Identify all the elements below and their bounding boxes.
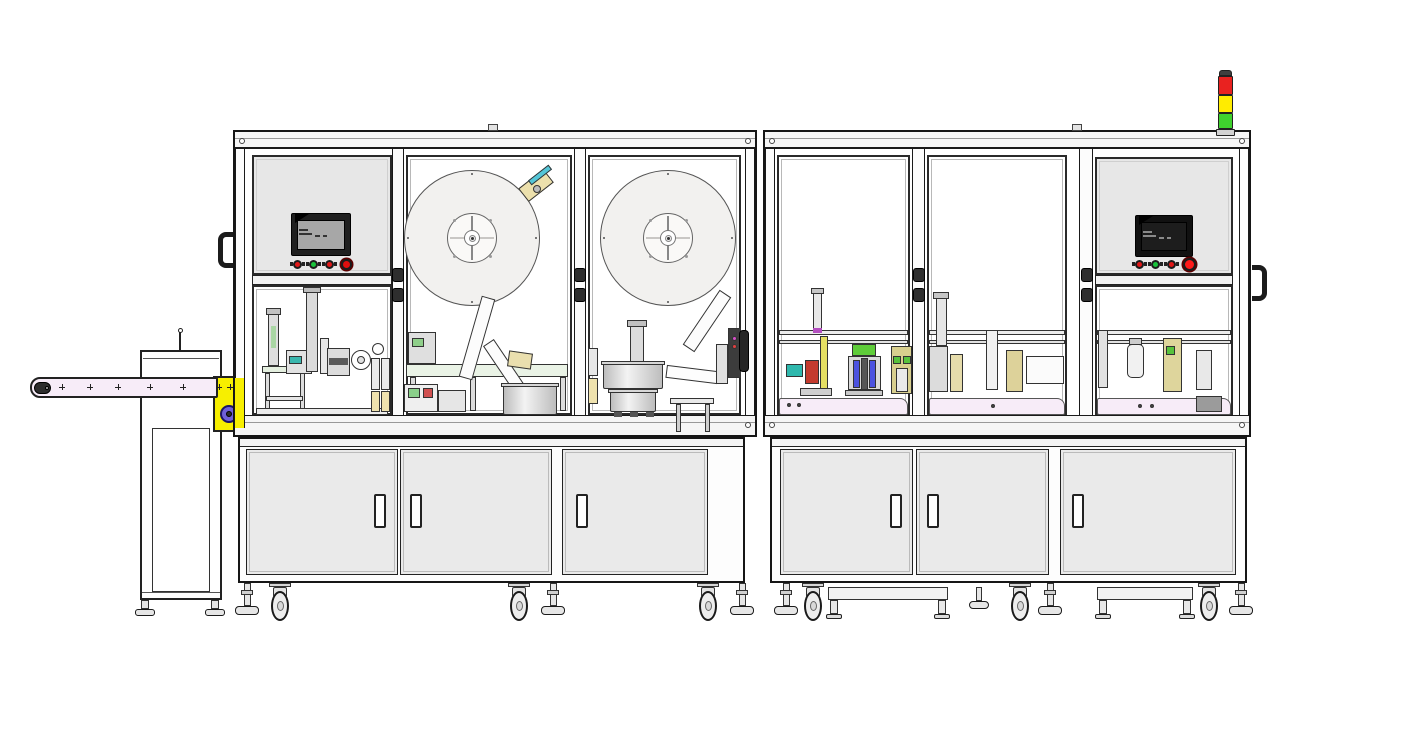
skid-platform: [828, 587, 948, 600]
green-chip: [412, 338, 424, 347]
bed-leg: [470, 377, 476, 411]
skid-pad: [1095, 614, 1111, 619]
corner-bolt: [769, 422, 775, 428]
door-hinge: [1081, 268, 1093, 282]
sensor-chip: [289, 356, 302, 364]
leveler-base: [774, 606, 798, 615]
door-handle[interactable]: [927, 494, 939, 528]
station-base: [845, 390, 883, 396]
door-handle-side[interactable]: [1252, 265, 1267, 301]
top-rail-line: [235, 138, 755, 139]
red-chip: [423, 388, 433, 398]
holder: [716, 344, 728, 384]
screen-text-mark: [1159, 237, 1164, 239]
red-module: [805, 360, 819, 384]
frl-bowl: [371, 391, 380, 412]
deck-dot: [1150, 404, 1154, 408]
station-band: [329, 358, 348, 365]
frl-unit: [381, 358, 390, 390]
cylinder-cap: [933, 292, 949, 299]
module: [1196, 350, 1212, 390]
door-handle[interactable]: [576, 494, 588, 528]
bed-leg: [560, 377, 566, 411]
hmi-push-button[interactable]: [325, 260, 334, 269]
corner-bolt: [745, 138, 751, 144]
pneumatic-cylinder: [813, 293, 822, 333]
leveler-collar: [736, 590, 748, 595]
stand-foot-base: [135, 609, 155, 616]
tan-module: [950, 354, 963, 392]
frl-unit: [588, 348, 598, 376]
rim-tick: [535, 237, 537, 239]
cylinder-cap: [266, 308, 281, 315]
pneumatic-cylinder: [1098, 330, 1108, 388]
door-handle[interactable]: [374, 494, 386, 528]
stand-plinth-line: [142, 592, 220, 593]
tower-red-light: [1218, 76, 1233, 95]
hmi-mid-rail: [252, 275, 392, 285]
hmi-push-button[interactable]: [1167, 260, 1176, 269]
antenna-tip: [178, 328, 183, 333]
corner-bolt: [745, 422, 751, 428]
belt-mark: [90, 384, 91, 390]
gripper-cap: [852, 344, 876, 356]
stand-leg: [676, 404, 681, 432]
frame-post: [1239, 149, 1249, 415]
cabinet-door-inner: [1063, 452, 1233, 572]
hmi-push-button[interactable]: [1135, 260, 1144, 269]
corner-bolt: [1239, 138, 1245, 144]
sensor-antenna: [179, 332, 181, 350]
emergency-stop-button[interactable]: [1183, 258, 1196, 271]
screen-text-mark: [1167, 237, 1171, 239]
bowl-feeder-top-lip: [601, 361, 665, 365]
caster-hub: [1206, 601, 1213, 611]
belt-mark: [219, 384, 220, 390]
frl-bowl: [381, 391, 390, 412]
feeder-module: [408, 332, 436, 364]
rim-tick: [731, 237, 733, 239]
tower-green-light: [1218, 113, 1233, 129]
frame-post: [765, 149, 775, 415]
bowl-feeder-top: [603, 361, 663, 389]
green-chip: [408, 388, 420, 398]
screen-text-mark: [323, 235, 327, 237]
white-post: [986, 330, 998, 390]
hub-dot: [453, 219, 456, 222]
frl-unit: [371, 358, 380, 390]
collection-drum: [503, 383, 557, 415]
button-mount-nub: [1176, 262, 1179, 266]
top-rail: [235, 132, 755, 149]
button-mount-nub: [334, 262, 337, 266]
screen-text-mark: [1143, 235, 1156, 237]
cursor-arrow-icon: [1139, 216, 1153, 225]
corner-bolt: [769, 138, 775, 144]
door-handle-side[interactable]: [218, 232, 233, 268]
screen-text-mark: [315, 235, 320, 237]
skid-leg: [1183, 600, 1191, 614]
table-leg: [265, 373, 270, 409]
hmi-push-button[interactable]: [309, 260, 318, 269]
leveler-base: [969, 601, 989, 609]
cylinder-stripe: [271, 326, 276, 348]
button-mount-nub: [1164, 262, 1167, 266]
deck-dot: [991, 404, 995, 408]
caster-hub: [705, 601, 712, 611]
slide: [896, 368, 908, 392]
table-leg: [300, 373, 305, 409]
tan-wedge: [507, 350, 533, 369]
gripper-finger: [869, 360, 876, 388]
base-plate: [256, 408, 388, 415]
skid-leg: [1099, 600, 1107, 614]
motor-hub: [226, 411, 232, 417]
gauge-dial: [357, 356, 365, 364]
rim-tick: [471, 173, 473, 175]
door-hinge: [392, 268, 404, 282]
button-mount-nub: [1144, 262, 1147, 266]
tower-yellow-light: [1218, 95, 1233, 113]
bowl-feeder-base-lip: [608, 389, 658, 393]
emergency-stop-button[interactable]: [341, 259, 352, 270]
pressure-gauge: [372, 343, 384, 355]
rail: [779, 330, 908, 335]
rim-tick: [667, 173, 669, 175]
pneumatic-cylinder: [936, 298, 947, 346]
screen-text-mark: [299, 229, 308, 231]
top-rail: [765, 132, 1249, 149]
rail: [1097, 330, 1231, 335]
green-chip: [903, 356, 911, 364]
leveler-base: [1229, 606, 1253, 615]
tall-actuator: [306, 292, 318, 372]
caster-hub: [277, 601, 284, 611]
frame-nub: [1072, 124, 1082, 131]
roller-axle: [45, 386, 49, 390]
caster-hub: [1017, 601, 1024, 611]
tape-reel-2-pin: [667, 237, 670, 240]
bottom-rail: [765, 415, 1249, 435]
door-hinge: [392, 288, 404, 302]
skid-leg: [938, 600, 946, 614]
leveler-collar: [1044, 590, 1056, 595]
button-mount-nub: [290, 262, 293, 266]
stand-foot-base: [205, 609, 225, 616]
frl-bowl: [588, 378, 598, 404]
actuator-cap: [627, 320, 647, 327]
frame-post: [1079, 149, 1093, 415]
gripper-center: [861, 358, 868, 390]
frame-post: [745, 149, 755, 415]
door-hinge: [574, 288, 586, 302]
deck-dot: [797, 403, 801, 407]
deck-dot: [1138, 404, 1142, 408]
door-hinge: [1081, 288, 1093, 302]
rail: [779, 340, 908, 344]
leveler-base: [730, 606, 754, 615]
green-chip: [1166, 346, 1175, 355]
skid-pad: [1179, 614, 1195, 619]
hub-dot: [489, 255, 492, 258]
station-base: [800, 388, 832, 396]
belt-mark: [230, 384, 231, 390]
tan-module: [1006, 350, 1023, 392]
door-handle[interactable]: [890, 494, 902, 528]
hmi-push-button[interactable]: [293, 260, 302, 269]
screen-text-mark: [1143, 231, 1152, 233]
corner-bolt: [239, 138, 245, 144]
green-chip: [893, 356, 901, 364]
deck-dot: [787, 403, 791, 407]
deck-end-unit: [1196, 396, 1222, 412]
frame-nub: [488, 124, 498, 131]
yellow-column: [820, 336, 828, 390]
door-hinge: [913, 288, 925, 302]
skid-pad: [826, 614, 842, 619]
belt-mark: [62, 384, 63, 390]
hmi-mid-rail: [1095, 275, 1233, 285]
left-cabinet-top-strip: [240, 439, 743, 447]
bottom-rail-line: [765, 422, 1249, 423]
frame-post: [392, 149, 404, 415]
frame-post: [912, 149, 925, 415]
button-mount-nub: [306, 262, 309, 266]
leveler-stem: [976, 587, 982, 601]
belt-mark: [150, 384, 151, 390]
hub-dot: [453, 255, 456, 258]
skid-platform: [1097, 587, 1193, 600]
stand-leg: [705, 404, 710, 432]
stand-cap-line: [143, 358, 219, 359]
label-head-roller: [533, 185, 541, 193]
skid-leg: [830, 600, 838, 614]
feeder-foot: [630, 412, 638, 417]
hub-dot: [649, 219, 652, 222]
button-mount-nub: [1132, 262, 1135, 266]
sensor-stripe: [813, 328, 822, 333]
frame-post: [235, 149, 245, 415]
caster-hub: [810, 601, 817, 611]
button-mount-nub: [1160, 262, 1163, 266]
caster-hub: [516, 601, 523, 611]
stand-foot-stem: [141, 600, 149, 609]
hub-dot: [649, 255, 652, 258]
button-mount-nub: [318, 262, 321, 266]
module: [929, 346, 948, 392]
table-shelf: [266, 396, 303, 401]
door-handle[interactable]: [1072, 494, 1084, 528]
machine-line-diagram: [0, 0, 1419, 752]
button-mount-nub: [302, 262, 305, 266]
conveyor-belt[interactable]: [30, 377, 218, 398]
tape-reel-1-pin: [471, 237, 474, 240]
actuator: [630, 326, 644, 364]
top-rail-line: [765, 138, 1249, 139]
button-mount-nub: [322, 262, 325, 266]
indicator-dot: [732, 344, 737, 349]
white-box: [1026, 356, 1064, 384]
transfer-deck: [929, 398, 1065, 415]
regulator-cap: [1129, 338, 1142, 345]
cursor-arrow-icon: [295, 214, 309, 223]
leveler-collar: [547, 590, 559, 595]
rim-tick: [407, 237, 409, 239]
belt-mark: [183, 384, 184, 390]
cabinet-door-inner: [403, 452, 549, 572]
screen-text-mark: [299, 233, 312, 235]
leveler-base: [541, 606, 565, 615]
hmi-push-button[interactable]: [1151, 260, 1160, 269]
cylinder-cap: [811, 288, 824, 294]
leveler-collar: [780, 590, 792, 595]
door-hinge: [574, 268, 586, 282]
door-hinge: [913, 268, 925, 282]
feeder-foot: [646, 412, 654, 417]
collection-drum-lip: [501, 383, 559, 387]
leveler-collar: [241, 590, 253, 595]
regulator-bottle: [1127, 344, 1144, 378]
door-latch[interactable]: [739, 330, 749, 372]
rim-tick: [471, 301, 473, 303]
frame-post: [574, 149, 586, 415]
motor-box-behind-frame: [234, 378, 245, 428]
hub-dot: [685, 255, 688, 258]
stand-inner-panel: [152, 428, 210, 592]
hub-dot: [685, 219, 688, 222]
hmi-screen-face: [297, 220, 345, 250]
door-handle[interactable]: [410, 494, 422, 528]
actuator-cap: [303, 287, 321, 293]
hub-dot: [489, 219, 492, 222]
leveler-base: [1038, 606, 1062, 615]
camera-block: [786, 364, 803, 377]
corner-bolt: [1239, 422, 1245, 428]
gripper-finger: [853, 360, 860, 388]
conveyor-bed: [406, 364, 568, 377]
leveler-base: [235, 606, 259, 615]
indicator-dot: [732, 336, 737, 341]
feeder-foot: [614, 412, 622, 417]
belt-mark: [118, 384, 119, 390]
button-mount-nub: [1148, 262, 1151, 266]
right-cabinet-top-strip: [772, 439, 1245, 447]
skid-pad: [934, 614, 950, 619]
stand-foot-stem: [211, 600, 219, 609]
rim-tick: [603, 237, 605, 239]
rim-tick: [667, 301, 669, 303]
module: [438, 390, 466, 412]
leveler-collar: [1235, 590, 1247, 595]
tower-base: [1216, 129, 1235, 136]
